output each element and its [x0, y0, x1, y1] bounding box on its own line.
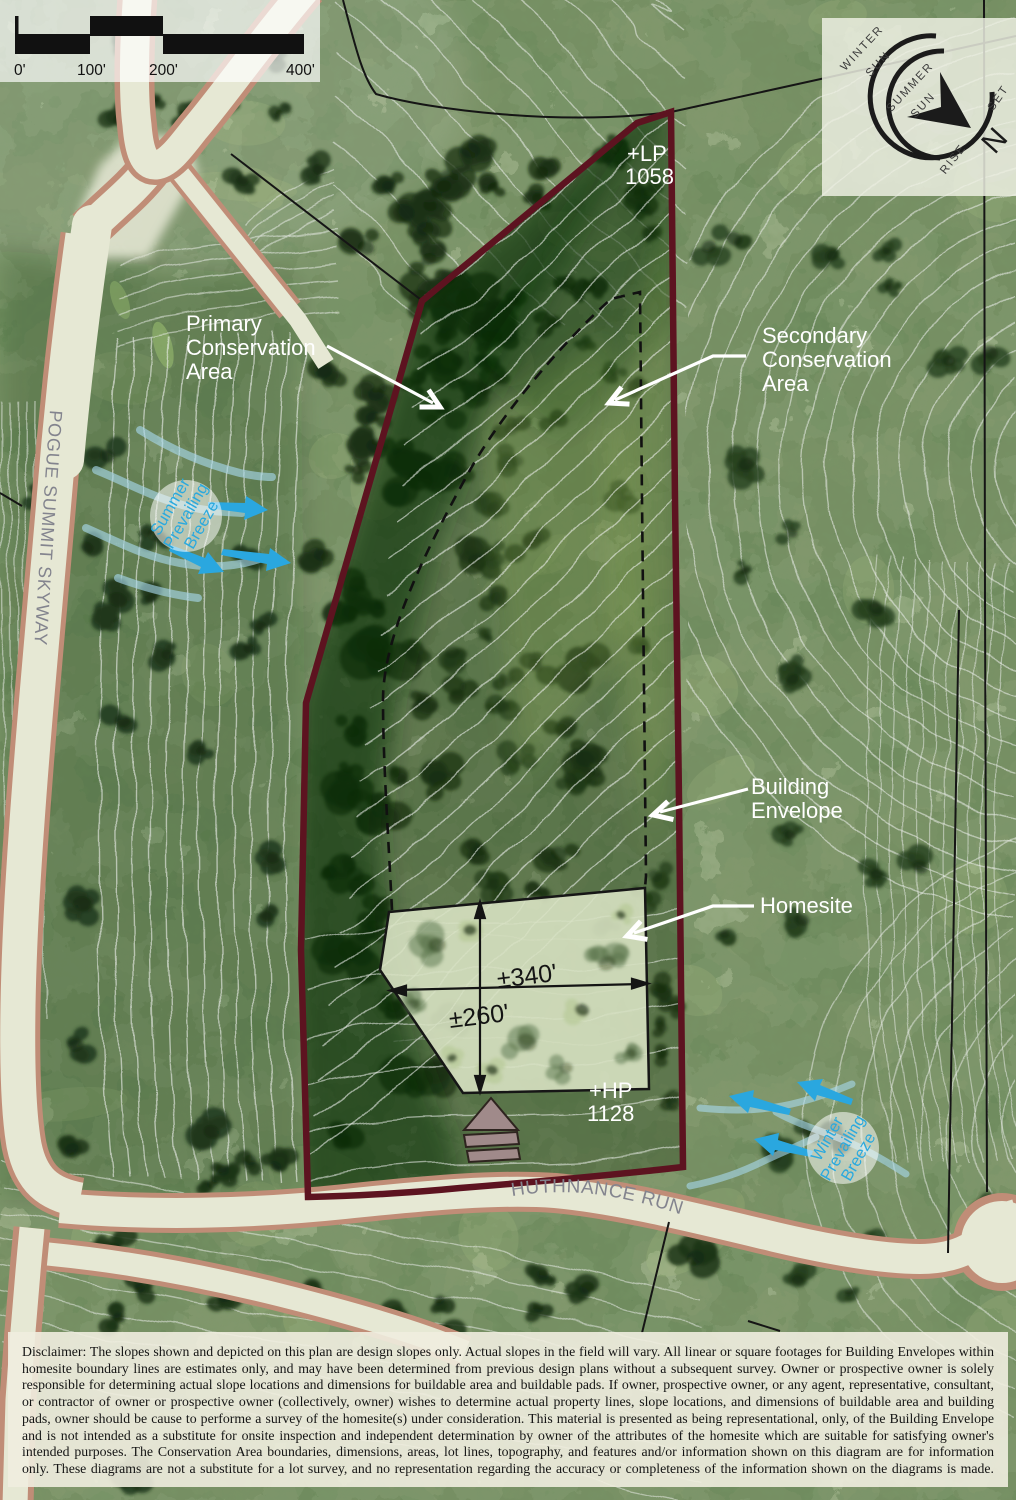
- svg-text:1128: 1128: [587, 1101, 634, 1126]
- svg-text:Homesite: Homesite: [760, 893, 853, 918]
- svg-text:100': 100': [77, 62, 106, 79]
- svg-text:+HP: +HP: [589, 1078, 632, 1103]
- svg-text:Area: Area: [762, 371, 809, 396]
- svg-text:Primary: Primary: [186, 311, 262, 336]
- svg-text:200': 200': [149, 62, 178, 79]
- svg-text:Secondary: Secondary: [762, 323, 867, 348]
- svg-text:Envelope: Envelope: [751, 798, 843, 823]
- svg-text:+LP: +LP: [627, 141, 667, 166]
- svg-text:Building: Building: [751, 774, 829, 799]
- svg-text:Conservation: Conservation: [762, 347, 892, 372]
- svg-text:Area: Area: [186, 359, 233, 384]
- svg-text:1058: 1058: [625, 164, 674, 189]
- svg-text:Conservation: Conservation: [186, 335, 316, 360]
- svg-text:0': 0': [14, 62, 26, 79]
- svg-text:400': 400': [286, 62, 315, 79]
